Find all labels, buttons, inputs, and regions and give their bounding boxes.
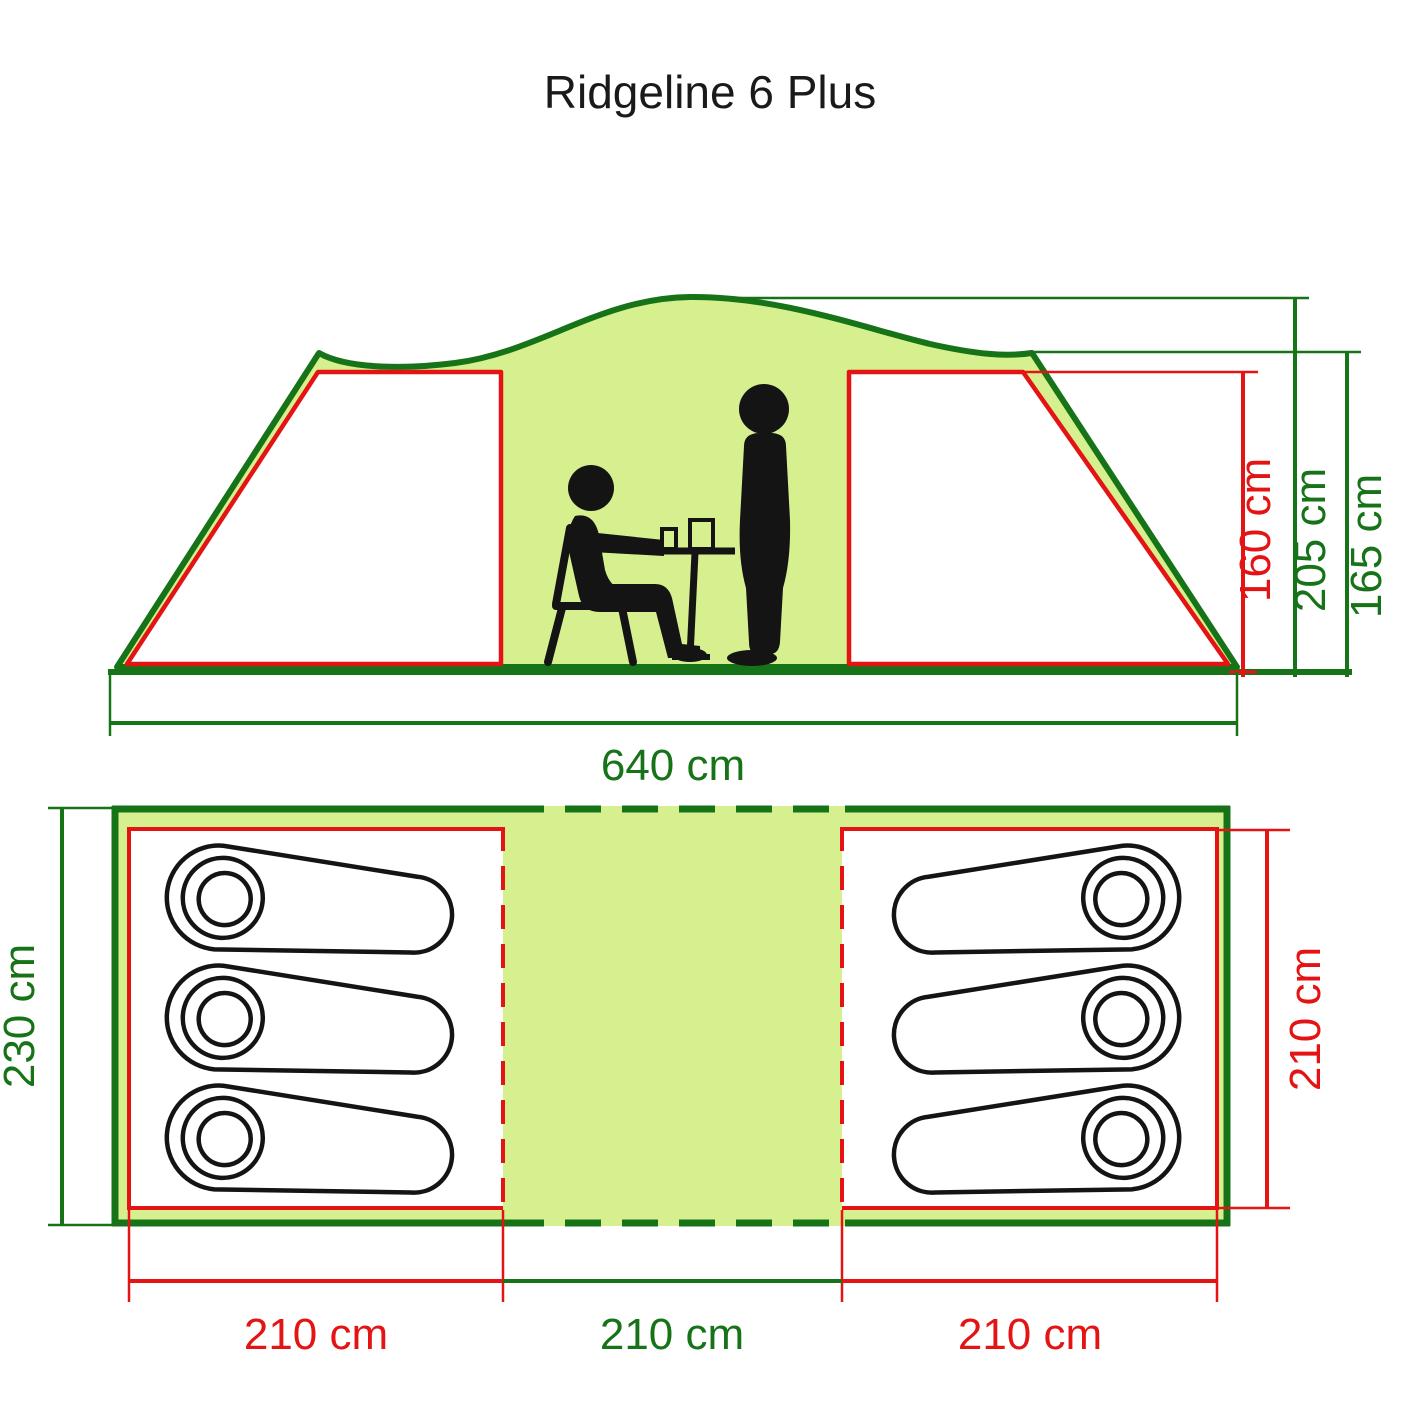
tent-spec-sheet: Ridgeline 6 Plus	[0, 0, 1417, 1417]
cup-icon	[662, 529, 676, 549]
carton-icon	[690, 520, 713, 549]
living-width-label: 210 cm	[600, 1310, 744, 1359]
shoulder-height-label: 165 cm	[1342, 474, 1391, 618]
peak-height-label: 205 cm	[1286, 468, 1335, 612]
page-title: Ridgeline 6 Plus	[544, 66, 876, 118]
elevation-left-bedroom	[127, 372, 501, 664]
right-bedroom-width-label: 210 cm	[958, 1310, 1102, 1359]
elevation-right-bedroom	[849, 372, 1228, 664]
inner-height-label: 160 cm	[1231, 458, 1280, 602]
total-depth-label: 230 cm	[0, 944, 44, 1088]
dimension-total-depth: 230 cm	[0, 808, 112, 1225]
dimension-bedroom-depth: 210 cm	[1217, 830, 1330, 1208]
left-bedroom-width-label: 210 cm	[244, 1310, 388, 1359]
dimension-bottom-widths: 210 cm 210 cm 210 cm	[129, 1210, 1217, 1359]
tent-diagram: Ridgeline 6 Plus	[0, 0, 1417, 1417]
floor-plan: 230 cm 210 cm 210 cm 210 cm 210 cm	[0, 806, 1330, 1359]
elevation-view: 160 cm 205 cm 165 cm 640 cm	[108, 297, 1391, 790]
bedroom-depth-label: 210 cm	[1281, 947, 1330, 1091]
total-width-label: 640 cm	[601, 741, 745, 790]
dimension-total-width: 640 cm	[110, 672, 1237, 790]
